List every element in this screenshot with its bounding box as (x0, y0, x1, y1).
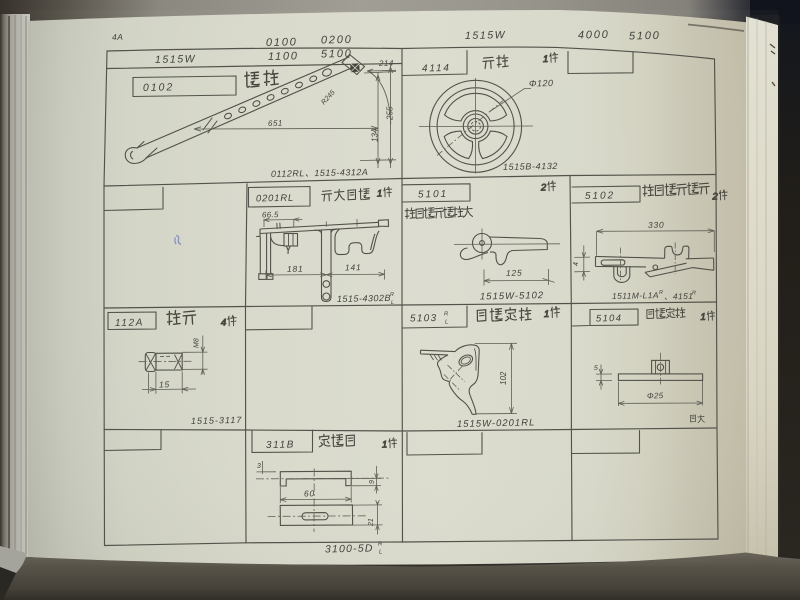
svg-text:1: 1 (544, 309, 550, 320)
svg-text:R: R (659, 290, 663, 296)
svg-text:4A: 4A (112, 32, 124, 42)
svg-text:1100: 1100 (268, 50, 299, 63)
svg-text:9: 9 (369, 480, 376, 484)
svg-text:0200: 0200 (321, 34, 353, 47)
svg-text:4000: 4000 (578, 29, 610, 42)
svg-text:15: 15 (159, 379, 170, 389)
svg-text:5: 5 (594, 365, 598, 372)
svg-text:Φ120: Φ120 (529, 78, 554, 89)
svg-text:4: 4 (221, 317, 227, 328)
svg-text:1515B-4132: 1515B-4132 (503, 161, 558, 172)
svg-text:5101: 5101 (418, 189, 448, 201)
svg-text:651: 651 (268, 119, 283, 128)
svg-text:R: R (444, 311, 449, 317)
svg-text:2: 2 (711, 191, 718, 202)
svg-text:5104: 5104 (596, 313, 623, 325)
svg-text:1: 1 (700, 312, 706, 323)
svg-text:1: 1 (543, 54, 549, 65)
svg-text:21: 21 (368, 518, 375, 527)
svg-text:L: L (391, 300, 394, 306)
svg-text:3: 3 (257, 463, 261, 470)
svg-text:5103: 5103 (410, 313, 438, 325)
svg-text:1515W-5102: 1515W-5102 (480, 290, 544, 302)
svg-text:112A: 112A (115, 317, 144, 329)
svg-text:0102: 0102 (143, 81, 175, 94)
svg-text:1515-4302B: 1515-4302B (337, 293, 391, 304)
svg-text:L: L (379, 549, 382, 555)
svg-text:1515W-0201RL: 1515W-0201RL (457, 417, 536, 430)
svg-text:141: 141 (345, 262, 362, 272)
svg-text:102: 102 (499, 371, 508, 385)
svg-text:1515W: 1515W (465, 29, 507, 42)
svg-text:4114: 4114 (422, 63, 451, 75)
svg-text:R: R (692, 290, 696, 296)
svg-text:5100: 5100 (321, 48, 353, 61)
svg-text:3100-5D: 3100-5D (325, 542, 374, 555)
svg-text:5100: 5100 (629, 30, 661, 43)
svg-text:1511M-L1A: 1511M-L1A (612, 290, 659, 301)
svg-text:66.5: 66.5 (262, 210, 279, 219)
svg-text:M8: M8 (194, 338, 201, 348)
svg-text:1: 1 (382, 439, 388, 450)
svg-text:1: 1 (377, 188, 383, 199)
svg-text:311B: 311B (266, 439, 295, 451)
svg-text:330: 330 (648, 220, 665, 230)
svg-text:60: 60 (304, 488, 315, 498)
svg-text:1515W: 1515W (155, 53, 197, 66)
svg-text:0201RL: 0201RL (256, 193, 294, 205)
svg-text:5102: 5102 (585, 190, 615, 202)
svg-text:181: 181 (287, 264, 304, 274)
svg-text:0112RL、1515-4312A: 0112RL、1515-4312A (271, 167, 369, 179)
svg-text:R: R (378, 541, 383, 547)
svg-text:、4151: 、4151 (664, 291, 694, 302)
svg-text:R: R (390, 292, 394, 298)
svg-text:4: 4 (573, 262, 580, 266)
svg-text:Φ25: Φ25 (647, 391, 664, 400)
svg-text:0100: 0100 (266, 36, 298, 49)
svg-text:125: 125 (506, 268, 523, 278)
svg-text:L: L (445, 319, 448, 325)
svg-text:214: 214 (378, 59, 394, 68)
svg-text:1515-3117: 1515-3117 (191, 415, 243, 426)
svg-text:2: 2 (540, 182, 547, 193)
